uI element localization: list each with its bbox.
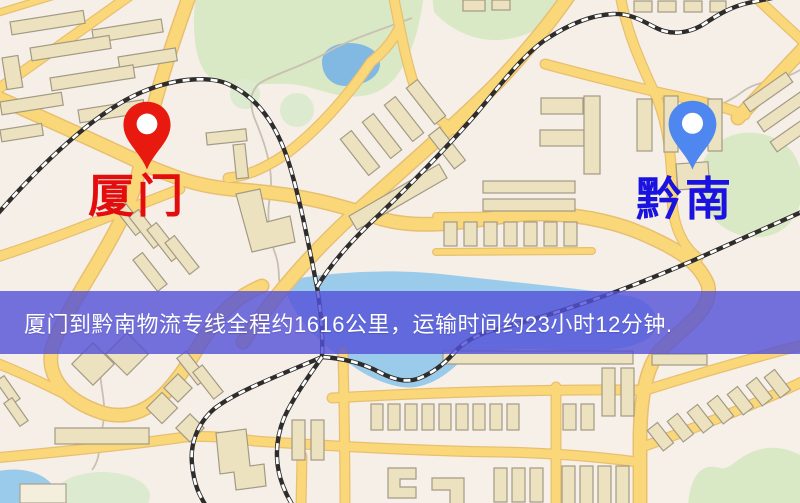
destination-pin-icon[interactable] [664,98,721,171]
origin-pin-icon[interactable] [119,99,175,171]
route-info-text: 厦门到黔南物流专线全程约1616公里，运输时间约23小时12分钟. [0,307,673,339]
destination-label: 黔南 [636,176,734,222]
origin-label: 厦门 [88,173,186,219]
route-info-banner: 厦门到黔南物流专线全程约1616公里，运输时间约23小时12分钟. [0,291,800,354]
logistics-route-map: 厦门 黔南 厦门到黔南物流专线全程约1616公里，运输时间约23小时12分钟. [0,0,800,503]
map-background [0,0,800,503]
